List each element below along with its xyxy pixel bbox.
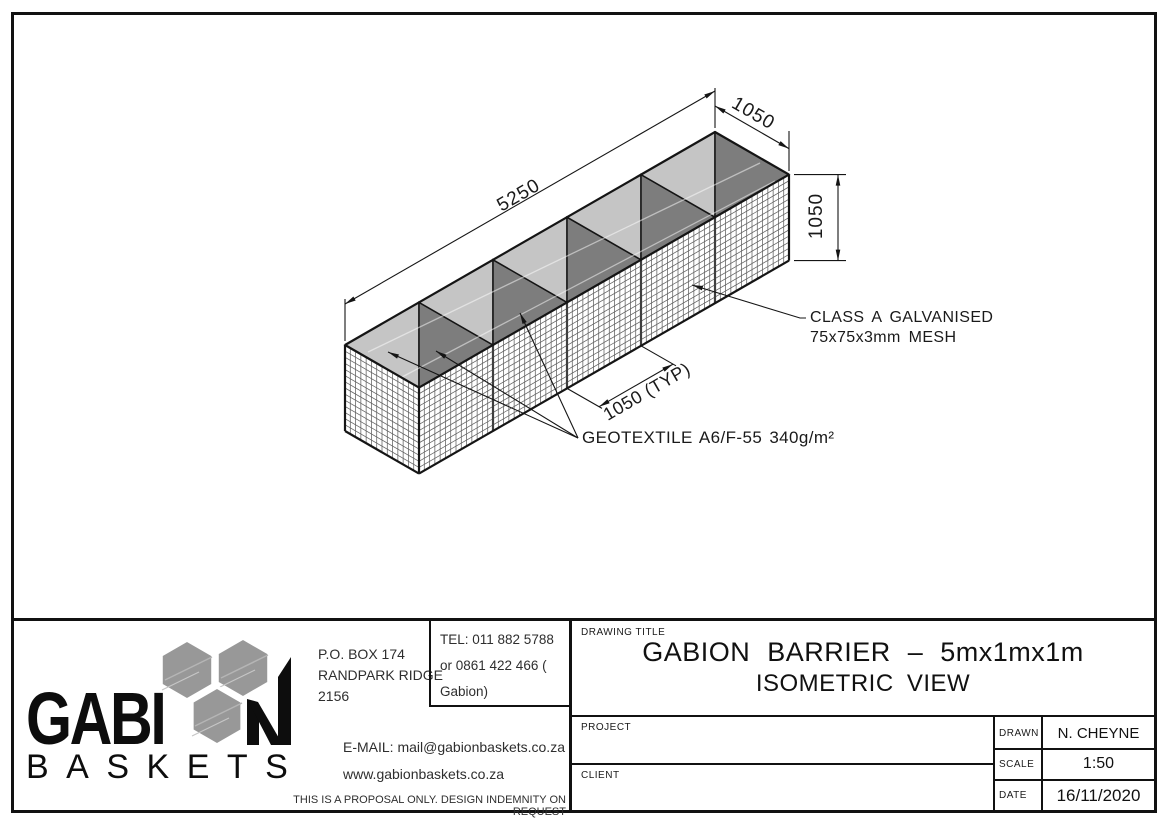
website-line: www.gabionbaskets.co.za (343, 761, 565, 788)
titleblock-rule (572, 763, 993, 765)
date-label: DATE (999, 790, 1027, 801)
mesh-note: CLASS A GALVANISED 75x75x3mm MESH (810, 308, 993, 348)
telephone-cell: TEL: 011 882 5788 or 0861 422 466 ( Gabi… (429, 621, 569, 707)
drawing-title-line1: GABION BARRIER – 5mx1mx1m (572, 637, 1154, 668)
tel-line-1: TEL: 011 882 5788 (440, 627, 569, 653)
client-label: CLIENT (581, 770, 620, 781)
project-label: PROJECT (581, 722, 631, 733)
titleblock-rule (995, 779, 1154, 781)
dim-height-label: 1050 (806, 193, 828, 239)
date-value: 16/11/2020 (1043, 786, 1154, 806)
mesh-note-line2: 75x75x3mm MESH (810, 328, 993, 348)
titleblock-rule (572, 715, 1154, 717)
address-line-3: 2156 (318, 686, 443, 707)
drawing-title-line2: ISOMETRIC VIEW (572, 670, 1154, 698)
drawn-value: N. CHEYNE (1043, 725, 1154, 742)
geotextile-note: GEOTEXTILE A6/F-55 340g/m² (582, 428, 835, 448)
email-line: E-MAIL: mail@gabionbaskets.co.za (343, 734, 565, 761)
drawn-label: DRAWN (999, 728, 1039, 739)
address-line-1: P.O. BOX 174 (318, 644, 443, 665)
scale-value: 1:50 (1043, 755, 1154, 773)
titleblock-top-rule (14, 618, 1154, 621)
titleblock-rule (995, 748, 1154, 750)
tel-line-2: or 0861 422 466 ( Gabion) (440, 653, 569, 705)
drawing-sheet: 5250 1050 1050 1050 (TYP) CLASS A GALVAN… (0, 0, 1169, 826)
titleblock-rule (993, 717, 995, 813)
isometric-drawing (0, 0, 1169, 620)
company-address: P.O. BOX 174 RANDPARK RIDGE 2156 (318, 644, 443, 707)
logo-hexagons (140, 635, 315, 767)
scale-label: SCALE (999, 759, 1034, 770)
mesh-note-line1: CLASS A GALVANISED (810, 308, 993, 328)
proposal-disclaimer: THIS IS A PROPOSAL ONLY. DESIGN INDEMNIT… (260, 794, 566, 818)
address-line-2: RANDPARK RIDGE (318, 665, 443, 686)
company-email-web: E-MAIL: mail@gabionbaskets.co.za www.gab… (343, 734, 565, 788)
